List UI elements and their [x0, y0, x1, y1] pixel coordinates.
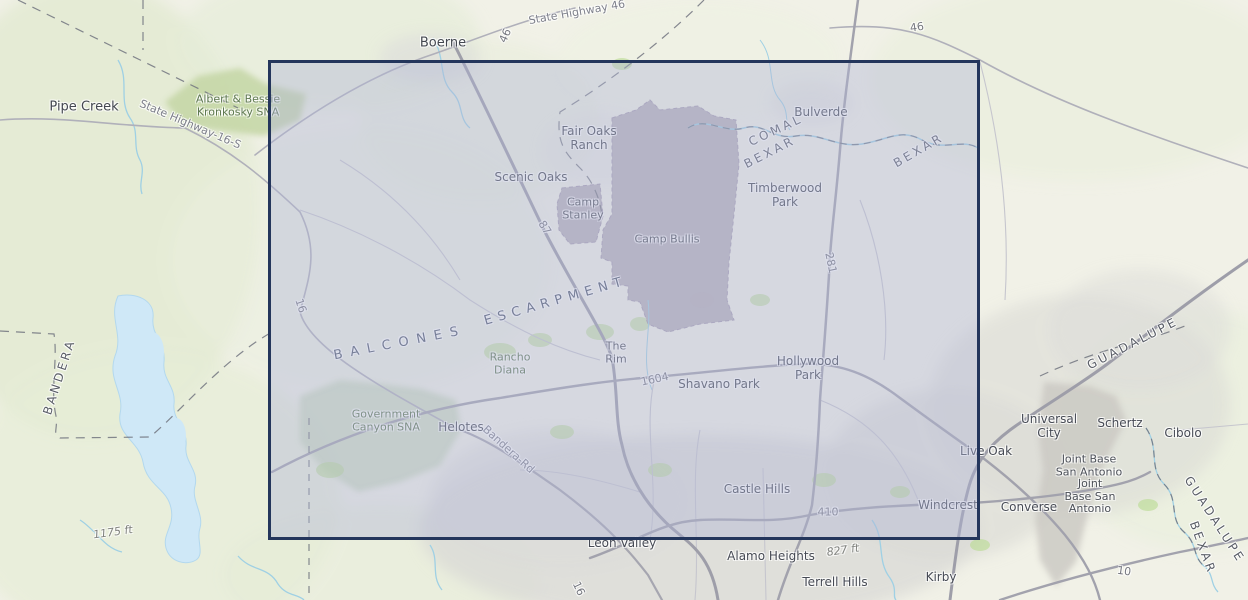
- map-label-elev-1175: 1175 ft: [92, 524, 133, 542]
- map-label-boerne: Boerne: [420, 37, 466, 52]
- selection-extent-rectangle[interactable]: [268, 60, 980, 540]
- map-label-schertz: Schertz: [1097, 417, 1142, 431]
- map-label-joint-base-san-antonio-1: Joint Base San Antonio: [1056, 453, 1123, 478]
- map-viewport[interactable]: BoernePipe CreekAlbert & Bessie Kronkosk…: [0, 0, 1248, 600]
- map-label-route-46-a: 46: [497, 27, 514, 45]
- map-label-terrell-hills: Terrell Hills: [802, 576, 867, 590]
- map-label-county-guadalupe-2: GUADALUPE: [1181, 474, 1247, 566]
- map-label-converse: Converse: [1001, 501, 1057, 515]
- map-label-state-highway-46: State Highway 46: [528, 0, 626, 28]
- map-label-pipe-creek: Pipe Creek: [49, 101, 118, 116]
- map-label-cibolo: Cibolo: [1164, 427, 1201, 441]
- map-label-county-bandera: BANDERA: [41, 337, 79, 417]
- map-label-county-guadalupe-1: GUADALUPE: [1085, 315, 1181, 373]
- map-label-route-10: 10: [1116, 565, 1132, 579]
- map-label-universal-city: Universal City: [1021, 413, 1077, 441]
- map-label-joint-base-san-antonio-2: Joint Base San Antonio: [1065, 478, 1116, 516]
- map-label-route-46-b: 46: [909, 21, 925, 35]
- map-label-route-16-b: 16: [569, 580, 586, 598]
- map-label-elev-827: 827 ft: [826, 542, 860, 559]
- map-label-alamo-heights: Alamo Heights: [727, 550, 815, 564]
- map-label-kirby: Kirby: [926, 571, 957, 585]
